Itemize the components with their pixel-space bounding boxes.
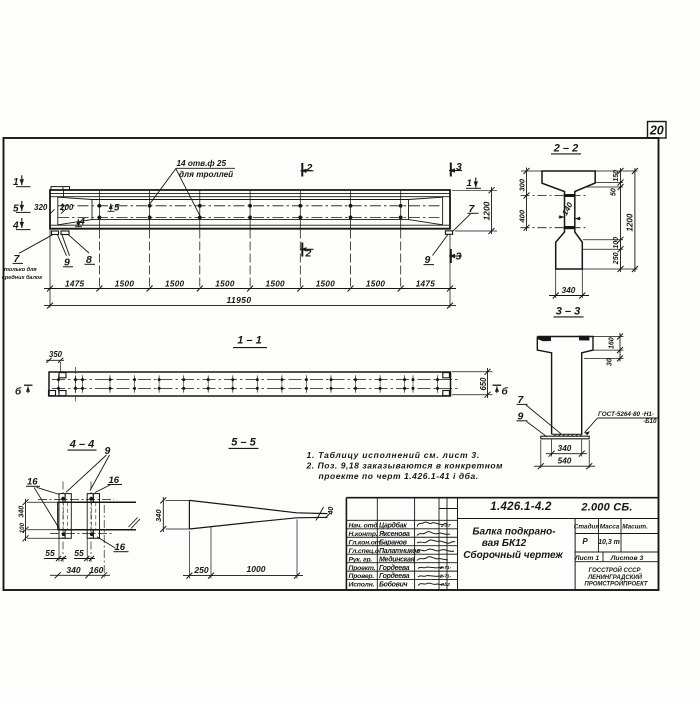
svg-text:3: 3 (456, 161, 462, 173)
svg-text:1 – 1: 1 – 1 (237, 335, 261, 347)
svg-text:50: 50 (611, 188, 618, 196)
svg-text:2 – 2: 2 – 2 (553, 143, 578, 155)
svg-text:Листов 3: Листов 3 (610, 555, 644, 562)
svg-text:100: 100 (19, 522, 26, 533)
svg-text:вая БК12: вая БК12 (482, 538, 527, 549)
svg-text:1000: 1000 (247, 564, 266, 574)
svg-text:2: 2 (305, 247, 312, 259)
svg-text:11950: 11950 (226, 295, 251, 305)
svg-text:Н.контр.: Н.контр. (349, 531, 378, 538)
svg-text:2-71-: 2-71- (439, 574, 452, 580)
svg-text:Гордеева: Гордеева (379, 564, 410, 572)
svg-text:2-57: 2-57 (440, 523, 451, 529)
svg-text:ГОСТ-5264·80 ·Н1·: ГОСТ-5264·80 ·Н1· (598, 411, 654, 418)
svg-text:Нач. отд: Нач. отд (349, 521, 378, 529)
svg-text:30: 30 (607, 358, 614, 366)
svg-text:1500: 1500 (115, 279, 135, 288)
svg-text:340: 340 (562, 286, 576, 295)
svg-text:только для: только для (4, 267, 37, 273)
svg-text:Проект.: Проект. (349, 565, 376, 572)
svg-text:1475: 1475 (416, 279, 436, 288)
svg-text:2-71-: 2-71- (439, 565, 452, 571)
svg-text:ЛЕНИНГРАДСКИЙ: ЛЕНИНГРАДСКИЙ (587, 573, 643, 581)
svg-text:Мединская: Мединская (379, 555, 415, 563)
svg-text:2: 2 (306, 162, 313, 174)
svg-text:5 – 5: 5 – 5 (231, 437, 256, 449)
svg-text:1500: 1500 (366, 279, 386, 288)
svg-text:400: 400 (518, 209, 527, 223)
svg-text:300: 300 (518, 178, 527, 191)
svg-text:для троллей: для троллей (179, 170, 233, 179)
svg-text:Рb2: Рb2 (441, 582, 450, 588)
svg-text:ГОССТРОЙ СССР: ГОССТРОЙ СССР (588, 566, 641, 574)
svg-text:160: 160 (609, 337, 616, 349)
svg-text:1475: 1475 (65, 279, 85, 288)
svg-text:340: 340 (66, 565, 80, 575)
svg-text:5: 5 (114, 202, 120, 213)
svg-text:55: 55 (74, 548, 84, 558)
svg-text:1200: 1200 (626, 213, 635, 231)
svg-text:1200: 1200 (482, 201, 492, 220)
svg-text:Гл.спец.о: Гл.спец.о (349, 548, 379, 555)
svg-text:Сборочный чертеж: Сборочный чертеж (463, 549, 563, 561)
svg-text:б: б (15, 386, 22, 398)
svg-text:1500: 1500 (165, 279, 185, 288)
svg-text:340: 340 (558, 444, 572, 453)
svg-text:1500: 1500 (265, 279, 285, 288)
svg-text:Провер.: Провер. (349, 573, 375, 580)
svg-text:Масшт.: Масшт. (622, 524, 648, 531)
svg-text:Гл.кон.от: Гл.кон.от (349, 539, 381, 546)
svg-text:Баранов: Баранов (379, 539, 408, 546)
svg-text:140: 140 (560, 200, 574, 216)
svg-text:1500: 1500 (316, 279, 336, 288)
svg-text:Стадия: Стадия (574, 523, 600, 531)
svg-text:Палатников: Палатников (379, 548, 421, 555)
svg-text:Лист 1: Лист 1 (574, 555, 600, 562)
svg-text:340: 340 (19, 506, 26, 518)
svg-text:средних балок: средних балок (2, 274, 43, 281)
svg-text:100: 100 (613, 237, 620, 249)
svg-text:·Б10: ·Б10 (643, 418, 657, 425)
svg-text:Исполн.: Исполн. (349, 582, 375, 589)
svg-text:250: 250 (613, 252, 620, 265)
svg-text:ПРОМСТРОЙПРОЕКТ: ПРОМСТРОЙПРОЕКТ (584, 580, 648, 588)
svg-text:2.000 СБ.: 2.000 СБ. (580, 502, 632, 514)
svg-text:540: 540 (558, 456, 572, 465)
svg-text:4 – 4: 4 – 4 (69, 439, 94, 451)
svg-text:650: 650 (479, 377, 488, 391)
svg-text:10,3 т: 10,3 т (598, 539, 620, 546)
svg-text:1: 1 (467, 178, 472, 189)
svg-text:Рук. гр.: Рук. гр. (349, 556, 373, 563)
svg-text:200: 200 (59, 203, 74, 212)
svg-text:Яксенова: Яксенова (378, 531, 410, 538)
svg-text:1500: 1500 (215, 279, 235, 288)
svg-text:Цардбак: Цардбак (379, 521, 407, 529)
svg-text:проекте по черт 1.426.1-41 і: проекте по черт 1.426.1-41 і дба. (319, 471, 479, 481)
svg-text:340: 340 (154, 509, 163, 522)
svg-text:150: 150 (613, 170, 620, 182)
svg-text:б: б (502, 385, 509, 397)
svg-text:2. Поз. 9,18 заказываются в ко: 2. Поз. 9,18 заказываются в конкретном (306, 461, 504, 471)
svg-text:1.426.1-4.2: 1.426.1-4.2 (490, 501, 552, 513)
svg-text:Бобович: Бобович (379, 581, 408, 589)
svg-text:4: 4 (79, 217, 86, 228)
svg-text:9: 9 (105, 445, 111, 457)
svg-text:3: 3 (456, 251, 462, 263)
svg-text:160: 160 (89, 565, 103, 575)
svg-text:Р: Р (582, 537, 588, 546)
svg-text:1. Таблицу исполнений см. лис: 1. Таблицу исполнений см. лист 3. (307, 450, 481, 460)
svg-text:Масса: Масса (600, 524, 620, 531)
svg-text:3 – 3: 3 – 3 (556, 306, 580, 318)
svg-text:Гордеева: Гордеева (379, 572, 410, 580)
svg-text:55: 55 (45, 548, 55, 558)
svg-text:320: 320 (34, 203, 48, 212)
svg-text:250: 250 (193, 565, 208, 575)
svg-text:Балка подкрано-: Балка подкрано- (472, 527, 556, 538)
svg-text:1: 1 (13, 177, 19, 188)
svg-text:20: 20 (649, 124, 664, 138)
svg-text:14 отв.ф 25: 14 отв.ф 25 (177, 159, 227, 168)
